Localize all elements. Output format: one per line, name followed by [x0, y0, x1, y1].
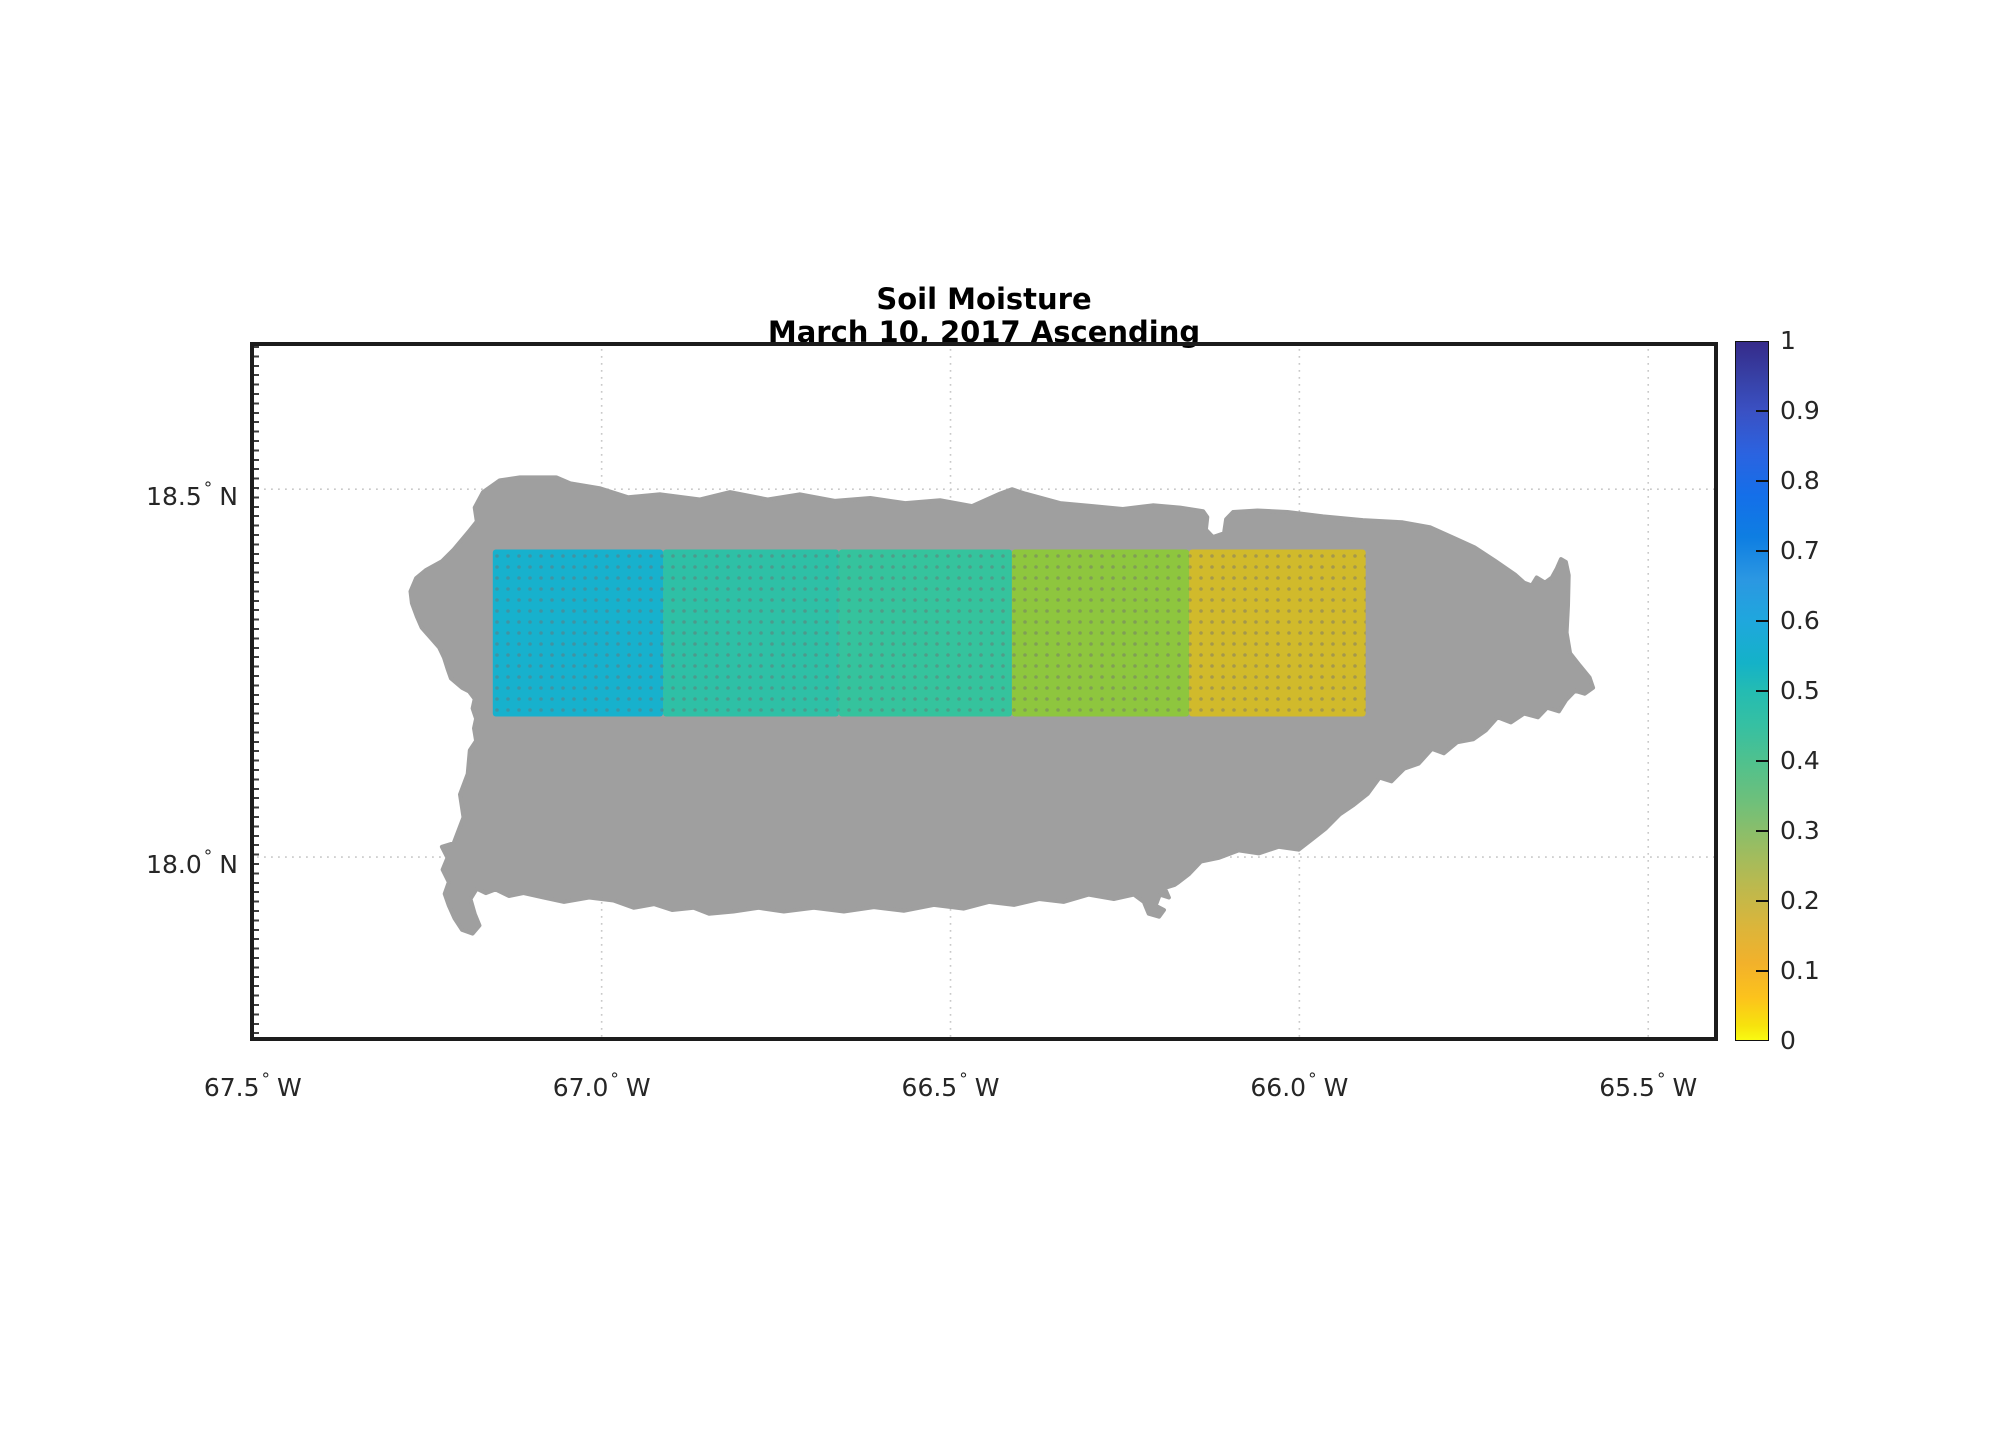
x-axis-tick-label: 67.0°W — [522, 1062, 682, 1098]
colorbar-tick — [1756, 410, 1768, 412]
colorbar-tick-label: 0.8 — [1780, 466, 1820, 496]
chart-title-line1: Soil Moisture — [250, 283, 1718, 316]
colorbar-tick — [1756, 690, 1768, 692]
colorbar-tick-label: 1 — [1780, 326, 1796, 356]
colorbar-tick — [1756, 830, 1768, 832]
y-axis-tick-label: 18.0°N — [108, 840, 238, 874]
colorbar-tick-label: 0.1 — [1780, 956, 1820, 986]
colorbar-tick — [1756, 970, 1768, 972]
x-axis-tick-label: 66.0°W — [1219, 1062, 1379, 1098]
x-axis-tick-label: 66.5°W — [871, 1062, 1031, 1098]
colorbar-tick-label: 0.7 — [1780, 536, 1820, 566]
colorbar-tick — [1756, 760, 1768, 762]
figure-canvas: { "title": { "line1": "Soil Moisture", "… — [0, 0, 1991, 1433]
colorbar-tick-label: 0.4 — [1780, 746, 1820, 776]
colorbar-tick-label: 0.3 — [1780, 816, 1820, 846]
colorbar-tick-label: 0.9 — [1780, 396, 1820, 426]
colorbar-tick — [1756, 900, 1768, 902]
colorbar-tick-label: 0.2 — [1780, 886, 1820, 916]
colorbar-tick — [1756, 620, 1768, 622]
x-axis-tick-label: 67.5°W — [173, 1062, 333, 1098]
colorbar-tick — [1756, 480, 1768, 482]
colorbar-tick-label: 0 — [1780, 1026, 1796, 1056]
colorbar-tick — [1756, 550, 1768, 552]
colorbar-tick-label: 0.5 — [1780, 676, 1820, 706]
x-axis-tick-label: 65.5°W — [1568, 1062, 1728, 1098]
figure: Soil Moisture March 10, 2017 Ascending 6… — [0, 0, 1991, 1433]
colorbar-tick-label: 0.6 — [1780, 606, 1820, 636]
axis-minor-ticks-icon — [254, 346, 259, 1037]
y-axis-tick-label: 18.5°N — [108, 472, 238, 506]
chart-title: Soil Moisture March 10, 2017 Ascending — [250, 283, 1718, 349]
plot-frame — [250, 342, 1718, 1041]
